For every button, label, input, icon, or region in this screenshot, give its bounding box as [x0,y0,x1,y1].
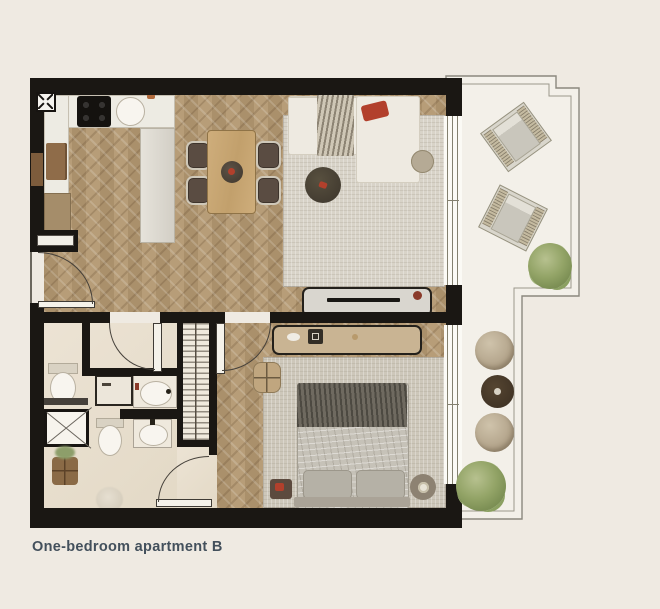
kitchen-sink-icon [116,97,145,126]
kitchen-tall-cabinet [44,193,71,232]
dining-chair [256,141,281,170]
balcony-pouf [475,413,514,452]
nightstand-decor-red [275,483,284,491]
dresser-decor-dot [352,334,358,340]
vanity-chair [253,362,281,393]
side-table [411,150,434,173]
balcony-outline [440,60,660,530]
table-candle-icon [494,388,501,395]
wardrobe-wall-left [177,312,183,447]
living-room-window [444,116,462,285]
bathroom-partition-h [82,368,177,376]
ensuite-sink-tap-icon [150,419,155,425]
nightstand-lamp-icon [418,482,429,493]
wardrobe [183,323,209,440]
washing-machine [95,375,133,406]
toilet-shelf [40,398,88,405]
bed-throw [297,383,407,427]
entry-threshold-line [30,252,32,303]
shower-x-icon [47,407,92,444]
balcony-plant-icon [456,461,506,511]
shaft-icon [36,92,56,112]
balcony-pouf [475,331,514,370]
sofa-throw [317,94,354,156]
wall-right-mid [446,285,462,325]
bed-headboard [294,497,410,507]
washing-machine-label-mark [102,383,111,386]
cutting-board [46,143,67,180]
entry-shoe-shelf [37,235,74,246]
plan-caption: One-bedroom apartment B [32,539,223,555]
wall-left-lower [30,303,44,528]
wardrobe-wall-bottom [177,440,217,447]
bathroom-plant-icon [55,446,75,459]
bedroom-window [444,325,462,484]
balcony-plant-icon [528,243,572,289]
ensuite-toilet-icon [98,425,122,456]
shower-x-icon [46,412,91,449]
wall-interior-left [44,312,110,323]
kitchen-island [140,128,175,243]
tv [327,298,400,302]
floor-plan-page: One-bedroom apartment B [0,0,660,609]
bed-pillow [356,470,405,499]
wall-right-upper [446,78,462,116]
bathroom-partition-v [82,323,90,368]
cooktop-icon [77,96,111,127]
bathroom-stool [52,457,78,485]
centerpiece-fruit [228,168,235,175]
dining-chair [256,176,281,205]
bed-pillow [303,470,352,499]
sink-decor-red [135,383,139,390]
dresser-tray [287,333,300,341]
shower-tray [44,409,89,447]
dresser-decor-box [308,329,323,344]
wall-bottom [30,508,462,528]
bathroom-partition-sinks [120,409,177,419]
wall-recess-door [31,153,43,186]
wall-interior-right [270,312,446,323]
wall-top [30,78,460,95]
sink-tap-icon [166,389,171,394]
ensuite-sink-icon [139,424,168,446]
sideboard-decor [413,291,422,300]
